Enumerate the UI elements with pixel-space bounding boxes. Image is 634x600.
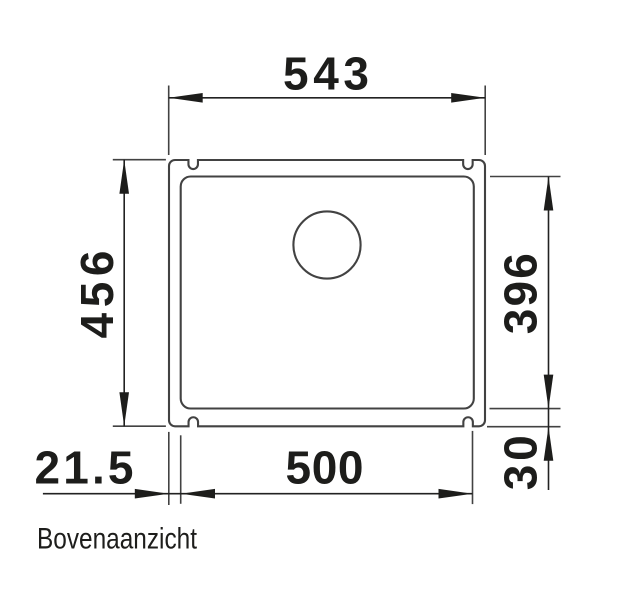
svg-text:396: 396	[495, 253, 547, 334]
svg-text:21.5: 21.5	[35, 441, 134, 493]
svg-text:Bovenaanzicht: Bovenaanzicht	[37, 522, 197, 555]
svg-text:30: 30	[494, 435, 546, 490]
svg-text:456: 456	[71, 251, 123, 339]
svg-text:500: 500	[286, 441, 364, 493]
svg-text:543: 543	[283, 47, 369, 99]
